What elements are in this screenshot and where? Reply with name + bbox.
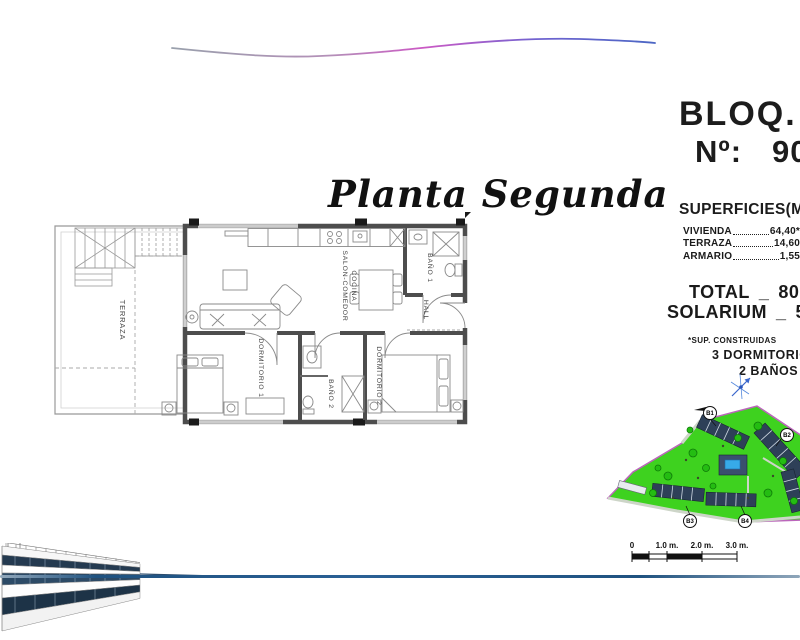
scale-tick-2: 2.0 m. bbox=[691, 541, 714, 550]
total-value: 80,55 bbox=[778, 282, 800, 303]
room-label-hall: HALL bbox=[422, 300, 429, 320]
row-value: 1,55 bbox=[780, 251, 800, 262]
floor-plan: TERRAZA SALON-COMEDOR COCINA BAÑO 1 HALL… bbox=[52, 210, 472, 430]
dotted-leader bbox=[733, 246, 773, 247]
solarium-label: SOLARIUM bbox=[667, 302, 767, 323]
unit-number-value: 90 bbox=[772, 134, 800, 170]
brochure-page: BLOQ. 5 Nº: 90 Planta Segunda bbox=[0, 0, 800, 640]
superficies-title: SUPERFICIES(M2) bbox=[679, 201, 800, 219]
unit-number-line: Nº: 90 bbox=[695, 134, 800, 170]
superficies-table: VIVIENDA 64,40* TERRAZA 14,60 ARMARIO 1,… bbox=[683, 224, 800, 262]
feature-dormitorios: 3 DORMITORIOS bbox=[712, 348, 800, 362]
room-label-dormitorio1: DORMITORIO 1 bbox=[257, 338, 264, 397]
total-separator: _ bbox=[759, 282, 770, 303]
scale-tick-0: 0 bbox=[630, 541, 635, 550]
block-label-b4: B4 bbox=[741, 519, 749, 525]
row-value: 14,60 bbox=[774, 238, 800, 249]
block-title: BLOQ. 5 bbox=[679, 95, 800, 134]
room-label-salon: SALON-COMEDOR bbox=[341, 250, 348, 321]
top-wave-decoration bbox=[160, 28, 670, 70]
row-label: VIVIENDA bbox=[683, 226, 732, 237]
room-label-cocina: COCINA bbox=[350, 270, 357, 301]
scale-bar: 0 1.0 m. 2.0 m. 3.0 m. bbox=[620, 538, 770, 570]
dotted-leader bbox=[733, 259, 779, 260]
superficies-row-terraza: TERRAZA 14,60 bbox=[683, 237, 800, 250]
row-label: ARMARIO bbox=[683, 251, 732, 262]
site-plan: B1 B2 B3 B4 bbox=[598, 398, 800, 548]
superficies-row-vivienda: VIVIENDA 64,40* bbox=[683, 224, 800, 237]
block-label-b3: B3 bbox=[686, 519, 694, 525]
footer-divider-line bbox=[0, 575, 800, 578]
room-label-bano1: BAÑO 1 bbox=[426, 253, 435, 283]
solarium-line: SOLARIUM _ 59,50 bbox=[667, 302, 800, 323]
scale-tick-1: 1.0 m. bbox=[656, 541, 679, 550]
row-value: 64,40* bbox=[770, 226, 800, 237]
block-label-b1: B1 bbox=[706, 411, 714, 417]
total-label: TOTAL bbox=[689, 282, 750, 303]
pool bbox=[725, 460, 740, 469]
stairs bbox=[75, 228, 185, 286]
block-label-b2: B2 bbox=[783, 433, 791, 439]
superficies-row-armario: ARMARIO 1,55 bbox=[683, 249, 800, 262]
solarium-separator: _ bbox=[776, 302, 787, 323]
superficies-footnote: *SUP. CONSTRUIDAS bbox=[688, 336, 776, 345]
room-label-bano2: BAÑO 2 bbox=[327, 379, 336, 409]
dotted-leader bbox=[733, 234, 769, 235]
solarium-value: 59,50 bbox=[796, 302, 800, 323]
building-render bbox=[0, 543, 240, 640]
row-label: TERRAZA bbox=[683, 238, 732, 249]
unit-number-label: Nº: bbox=[695, 134, 742, 170]
room-label-dormitorio2: DORMITORIO 2 bbox=[375, 346, 382, 405]
total-line: TOTAL _ 80,55 bbox=[689, 282, 800, 303]
room-label-terraza: TERRAZA bbox=[118, 300, 127, 341]
scale-tick-3: 3.0 m. bbox=[726, 541, 749, 550]
